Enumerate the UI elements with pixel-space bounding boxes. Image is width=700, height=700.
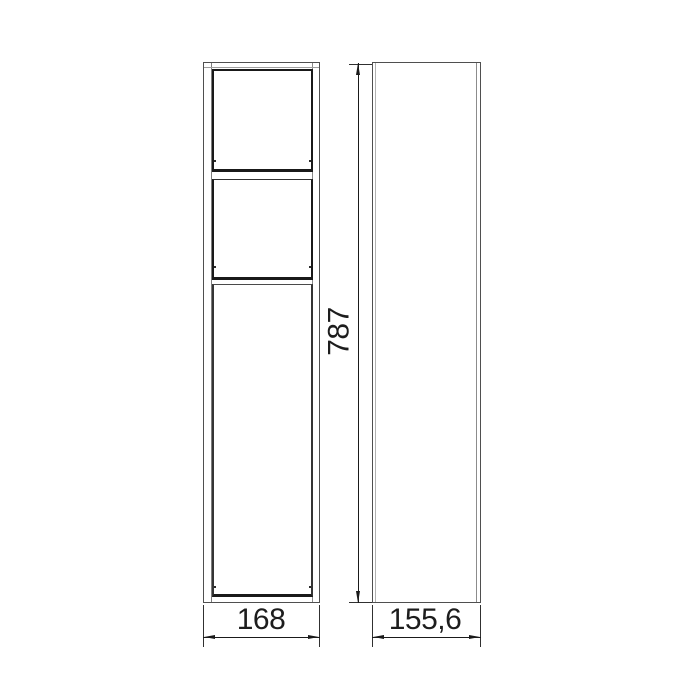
side-inner-left-line — [375, 63, 376, 602]
front-inner-top-line — [204, 67, 319, 68]
fitting-dot — [309, 160, 311, 162]
height-dimension-line — [358, 63, 359, 603]
arrow-left-icon — [373, 635, 384, 639]
arrow-down-icon — [356, 591, 360, 603]
arrow-right-icon — [469, 635, 480, 639]
side-depth-extension-line-left — [372, 605, 373, 647]
technical-drawing-canvas: 787 168 155,6 — [0, 0, 700, 700]
front-width-dimension-line — [203, 637, 320, 638]
side-depth-dimension-label: 155,6 — [385, 604, 465, 635]
side-view-outline — [372, 62, 481, 603]
fitting-dot — [309, 266, 311, 268]
front-width-dimension-label: 168 — [221, 604, 301, 635]
side-inner-right-line — [476, 63, 477, 602]
arrow-left-icon — [204, 635, 215, 639]
fitting-dot — [214, 266, 216, 268]
height-dimension-label: 787 — [324, 292, 355, 372]
height-extension-line-bottom — [349, 602, 372, 603]
front-width-extension-line-right — [319, 605, 320, 647]
height-extension-line-top — [349, 64, 372, 65]
drawer-front-panel — [212, 179, 313, 280]
front-width-extension-line-left — [203, 605, 204, 647]
arrow-right-icon — [308, 635, 319, 639]
open-niche-compartment — [212, 69, 313, 172]
arrow-up-icon — [356, 63, 360, 75]
side-depth-dimension-line — [372, 637, 481, 638]
fitting-dot — [214, 586, 216, 588]
door-front-panel — [212, 284, 313, 597]
side-depth-extension-line-right — [480, 605, 481, 647]
fitting-dot — [214, 160, 216, 162]
fitting-dot — [309, 586, 311, 588]
